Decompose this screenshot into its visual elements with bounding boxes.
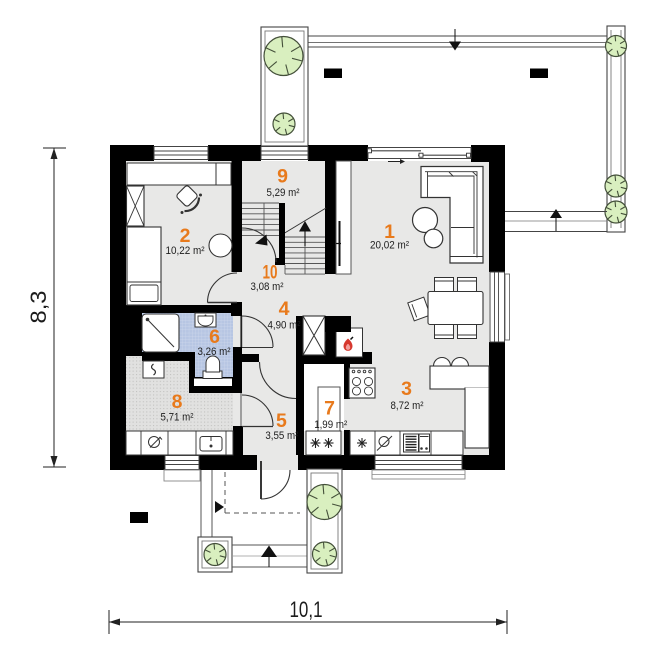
svg-text:8,3: 8,3 [26,291,51,324]
svg-text:10,1: 10,1 [290,597,323,622]
svg-text:3,26 m²: 3,26 m² [198,346,231,358]
svg-text:5,29 m²: 5,29 m² [267,187,300,199]
svg-text:7: 7 [324,398,335,420]
svg-text:3: 3 [401,378,412,400]
svg-text:2: 2 [180,225,191,247]
svg-text:9: 9 [277,166,288,188]
svg-text:1,99 m²: 1,99 m² [314,419,347,431]
svg-text:5,71 m²: 5,71 m² [161,412,194,424]
svg-text:6: 6 [209,326,220,348]
svg-text:3,55 m²: 3,55 m² [265,430,298,442]
svg-text:10,22 m²: 10,22 m² [166,245,205,257]
svg-text:5: 5 [276,410,287,432]
svg-text:4,90 m²: 4,90 m² [268,320,301,332]
svg-text:20,02 m²: 20,02 m² [370,240,409,252]
svg-text:8,72 m²: 8,72 m² [391,400,424,412]
svg-text:8: 8 [172,391,183,413]
svg-text:4: 4 [279,298,290,320]
svg-text:3,08 m²: 3,08 m² [251,281,284,293]
